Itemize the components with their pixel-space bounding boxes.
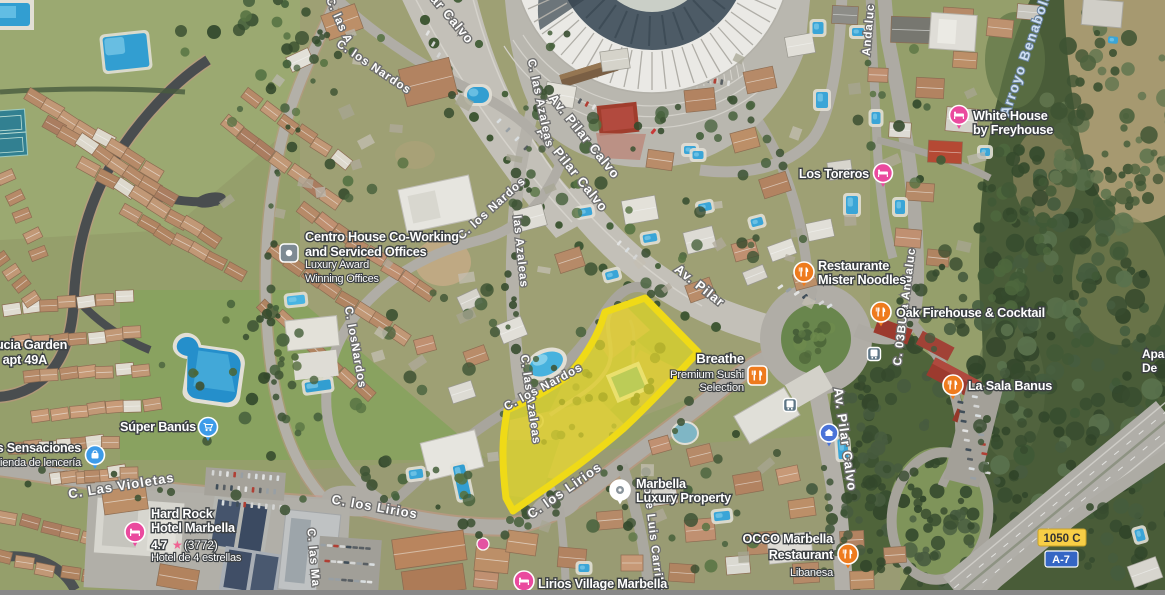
svg-text:Restaurante: Restaurante: [818, 259, 889, 273]
svg-text:★: ★: [172, 538, 183, 552]
svg-text:Lirios Village Marbella: Lirios Village Marbella: [538, 577, 668, 590]
svg-text:Centro House Co-Working: Centro House Co-Working: [305, 230, 459, 244]
svg-text:1050 C: 1050 C: [1043, 533, 1080, 545]
svg-text:Súper Banús: Súper Banús: [120, 420, 196, 434]
svg-text:OCCO Marbella: OCCO Marbella: [743, 532, 835, 546]
svg-text:, apt 49A: , apt 49A: [0, 353, 47, 367]
svg-text:Luxury Award: Luxury Award: [305, 259, 369, 271]
svg-text:Oak Firehouse & Cocktail: Oak Firehouse & Cocktail: [896, 306, 1045, 320]
svg-text:4.7: 4.7: [151, 538, 168, 552]
svg-text:s Sensaciones: s Sensaciones: [0, 441, 81, 455]
svg-text:A-7: A-7: [1052, 554, 1070, 566]
svg-text:Hotel Marbella: Hotel Marbella: [151, 521, 236, 535]
svg-text:White House: White House: [973, 109, 1048, 123]
svg-text:Mister Noodles: Mister Noodles: [818, 273, 906, 287]
svg-text:Luxury Property: Luxury Property: [636, 491, 731, 505]
svg-text:De: De: [1142, 361, 1157, 375]
svg-text:and Serviced Offices: and Serviced Offices: [305, 245, 427, 259]
svg-text:La Sala Banus: La Sala Banus: [968, 379, 1052, 393]
svg-text:Restaurant: Restaurant: [769, 548, 834, 562]
svg-text:Apar: Apar: [1142, 347, 1165, 361]
svg-text:Hard Rock: Hard Rock: [151, 507, 214, 521]
svg-text:Tienda de lencería: Tienda de lencería: [0, 457, 82, 469]
svg-text:Selection: Selection: [699, 382, 744, 394]
svg-text:Premium Sushi: Premium Sushi: [670, 369, 744, 381]
svg-text:ucia Garden: ucia Garden: [0, 338, 67, 352]
svg-text:Los Toreros: Los Toreros: [799, 167, 869, 181]
svg-text:Hotel de 4 estrellas: Hotel de 4 estrellas: [151, 552, 242, 564]
svg-text:Winning Offices: Winning Offices: [305, 273, 380, 285]
svg-text:Marbella: Marbella: [636, 477, 687, 491]
svg-text:(3772): (3772): [184, 538, 218, 552]
svg-text:by Freyhouse: by Freyhouse: [973, 123, 1053, 137]
svg-text:Libanesa: Libanesa: [790, 567, 834, 579]
svg-text:Breathe: Breathe: [696, 351, 744, 366]
